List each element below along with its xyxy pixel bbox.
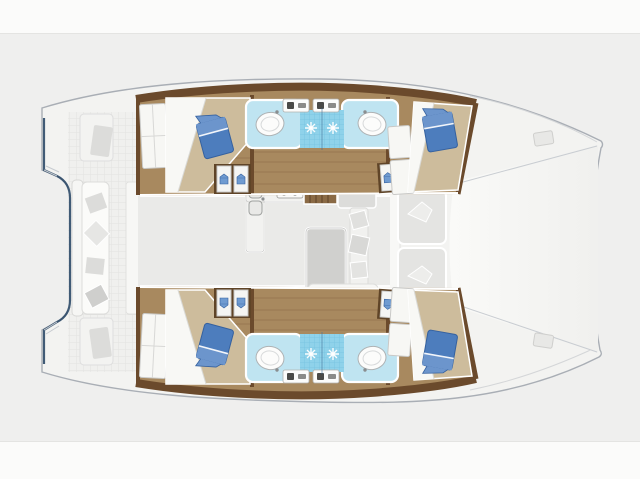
faucet: [363, 110, 366, 113]
wardrobe-doors: [388, 125, 412, 158]
sofa-cushion: [349, 210, 369, 230]
wardrobe: [139, 103, 168, 168]
background-top-band: [0, 0, 640, 33]
bench-cushion: [85, 257, 105, 275]
sofa-cushion: [350, 261, 368, 279]
deck-hatch: [533, 333, 554, 349]
sofa-cushion: [348, 234, 369, 255]
sink-bowl: [249, 201, 262, 215]
bench-backrest: [72, 180, 83, 316]
background-bottom-band: [0, 441, 640, 479]
hull-port: [136, 87, 476, 196]
faucet: [275, 110, 278, 113]
cockpit-seat-port: [80, 114, 113, 161]
saloon-sofa: [348, 208, 369, 286]
locker-alcove-aft: [214, 164, 251, 194]
transom-bench: [72, 180, 109, 316]
toilet: [283, 99, 309, 112]
hull-starboard: [136, 286, 476, 395]
faucet: [261, 197, 264, 200]
dinette-table: [306, 228, 346, 292]
deck-hatch: [533, 131, 554, 147]
floorplan-stage: [0, 0, 640, 479]
cockpit-seat-starboard: [80, 318, 113, 365]
catamaran-floorplan: [0, 0, 640, 479]
toilet: [313, 99, 339, 112]
head-fwd: [313, 99, 398, 150]
